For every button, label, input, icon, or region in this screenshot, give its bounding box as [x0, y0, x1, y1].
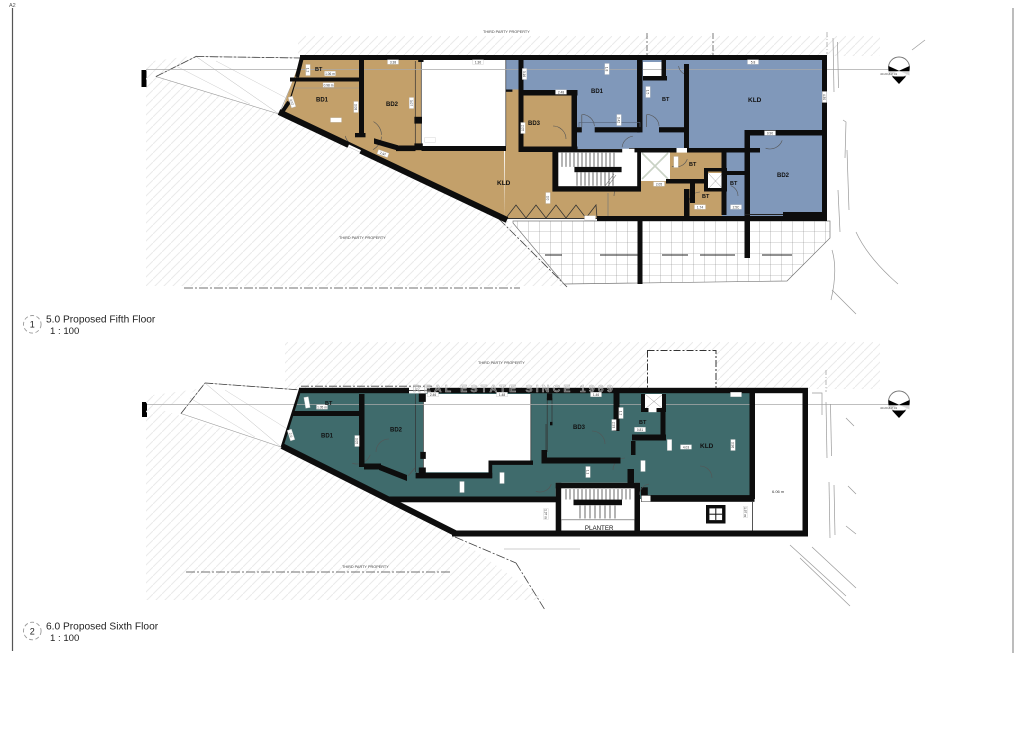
svg-text:BT: BT [315, 67, 323, 73]
svg-text:3.07: 3.07 [409, 100, 413, 106]
svg-text:REAL ESTATE SINCE 1969: REAL ESTATE SINCE 1969 [413, 383, 616, 395]
svg-text:BD1: BD1 [321, 434, 334, 440]
svg-text:PLANTER: PLANTER [585, 525, 614, 532]
svg-text:BD2: BD2 [390, 428, 403, 434]
svg-text:1.97 m: 1.97 m [544, 509, 548, 519]
svg-text:BD2: BD2 [777, 173, 790, 179]
svg-text:3.38: 3.38 [390, 60, 396, 64]
svg-text:5.8: 5.8 [751, 60, 756, 64]
svg-text:BD1: BD1 [591, 89, 604, 95]
svg-text:0.90: 0.90 [767, 131, 773, 135]
svg-text:3.08: 3.08 [354, 104, 358, 110]
svg-text:0.98 m: 0.98 m [324, 83, 334, 87]
svg-text:2.48: 2.48 [558, 90, 564, 94]
svg-text:3.96: 3.96 [731, 442, 735, 448]
svg-text:THIRD PARTY PROPERTY: THIRD PARTY PROPERTY [339, 236, 386, 240]
svg-text:40.20 A 2 01: 40.20 A 2 01 [880, 72, 897, 76]
svg-text:THIRD PARTY PROPERTY: THIRD PARTY PROPERTY [483, 30, 530, 34]
svg-text:KLD: KLD [748, 97, 762, 104]
svg-text:BT: BT [702, 194, 710, 200]
svg-text:BD3: BD3 [528, 121, 541, 127]
svg-text:BD2: BD2 [386, 102, 399, 108]
svg-text:3.05: 3.05 [355, 438, 359, 444]
svg-text:5.0 Proposed Fifth Floor: 5.0 Proposed Fifth Floor [46, 315, 156, 326]
svg-text:BD1: BD1 [316, 98, 329, 104]
svg-text:BT: BT [662, 97, 670, 103]
svg-text:2.05: 2.05 [521, 125, 525, 131]
svg-text:6.0 Proposed Sixth Floor: 6.0 Proposed Sixth Floor [46, 622, 159, 633]
svg-text:BD3: BD3 [573, 425, 586, 431]
svg-text:2.05: 2.05 [656, 182, 662, 186]
svg-text:6.06 m: 6.06 m [772, 489, 785, 494]
svg-text:1.2: 1.2 [619, 411, 623, 416]
svg-text:1.5: 1.5 [646, 90, 650, 95]
svg-text:1 : 100: 1 : 100 [50, 633, 79, 644]
svg-text:BT: BT [325, 401, 333, 407]
svg-text:2.5C: 2.5C [733, 205, 740, 209]
svg-text:2: 2 [30, 626, 35, 636]
svg-text:BT: BT [730, 181, 738, 187]
svg-text:KLD: KLD [700, 443, 714, 450]
svg-text:THIRD PARTY PROPERTY: THIRD PARTY PROPERTY [342, 565, 389, 569]
svg-text:1.06 m: 1.06 m [325, 72, 335, 76]
svg-text:1.2: 1.2 [306, 68, 310, 73]
svg-text:2.93: 2.93 [612, 422, 616, 428]
svg-text:BT: BT [689, 162, 697, 168]
svg-text:1.8: 1.8 [605, 67, 609, 72]
svg-text:0.81: 0.81 [637, 428, 643, 432]
svg-text:1.1: 1.1 [586, 470, 590, 475]
svg-text:1.30: 1.30 [475, 60, 481, 64]
svg-text:4.30: 4.30 [822, 94, 826, 100]
svg-text:3.16: 3.16 [522, 71, 526, 77]
svg-text:1: 1 [30, 320, 35, 330]
svg-text:1.97 m: 1.97 m [743, 507, 747, 517]
svg-text:KLD: KLD [497, 180, 511, 187]
svg-text:BT: BT [639, 420, 647, 426]
svg-text:THIRD PARTY PROPERTY: THIRD PARTY PROPERTY [478, 361, 525, 365]
svg-text:1.74: 1.74 [697, 205, 703, 209]
svg-text:3.42: 3.42 [617, 117, 621, 123]
svg-text:4.03: 4.03 [683, 445, 689, 449]
svg-text:40.20 A 2 01: 40.20 A 2 01 [880, 406, 897, 410]
svg-text:1 : 100: 1 : 100 [50, 326, 79, 337]
svg-text:3.0: 3.0 [546, 196, 550, 201]
